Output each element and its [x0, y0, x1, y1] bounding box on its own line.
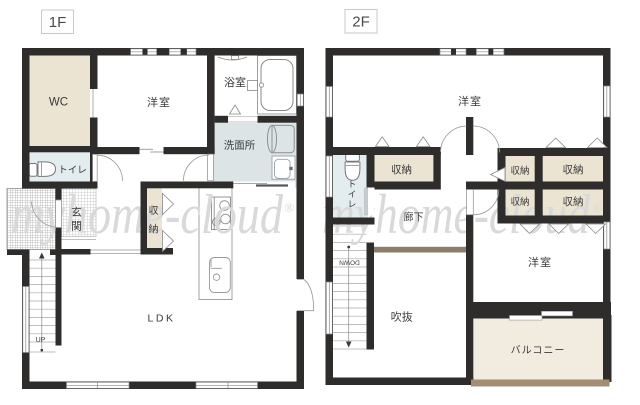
svg-text:myhome-cloud: myhome-cloud — [11, 184, 284, 246]
svg-text:WC: WC — [49, 97, 68, 109]
svg-text:UP: UP — [36, 337, 46, 344]
svg-text:1F: 1F — [49, 14, 67, 31]
svg-text:収納: 収納 — [510, 196, 529, 208]
svg-text:バルコニー: バルコニー — [511, 345, 566, 357]
svg-text:洋室: 洋室 — [528, 255, 552, 269]
svg-text:myhome-cloud: myhome-cloud — [322, 184, 591, 246]
svg-text:®: ® — [284, 200, 294, 215]
svg-text:®: ® — [592, 200, 602, 215]
svg-text:2F: 2F — [352, 14, 370, 31]
svg-text:関: 関 — [71, 221, 82, 233]
svg-text:収: 収 — [149, 205, 159, 217]
svg-text:収納: 収納 — [563, 195, 584, 208]
svg-text:洋室: 洋室 — [147, 95, 171, 109]
svg-text:洗面所: 洗面所 — [224, 140, 256, 152]
svg-text:収納: 収納 — [510, 165, 529, 177]
svg-text:洋室: 洋室 — [458, 94, 482, 108]
svg-text:イ: イ — [348, 189, 357, 199]
svg-text:廊下: 廊下 — [404, 211, 424, 224]
svg-text:トイレ: トイレ — [58, 165, 87, 176]
svg-text:納: 納 — [149, 223, 159, 236]
svg-text:LDK: LDK — [148, 313, 176, 325]
svg-text:収納: 収納 — [563, 163, 584, 176]
svg-text:収納: 収納 — [391, 163, 412, 176]
svg-text:DOWN: DOWN — [339, 259, 360, 266]
svg-text:吹抜: 吹抜 — [391, 310, 413, 324]
svg-text:玄: 玄 — [71, 206, 82, 219]
svg-text:浴室: 浴室 — [224, 75, 246, 89]
svg-text:レ: レ — [348, 199, 357, 209]
svg-text:ト: ト — [348, 179, 357, 189]
